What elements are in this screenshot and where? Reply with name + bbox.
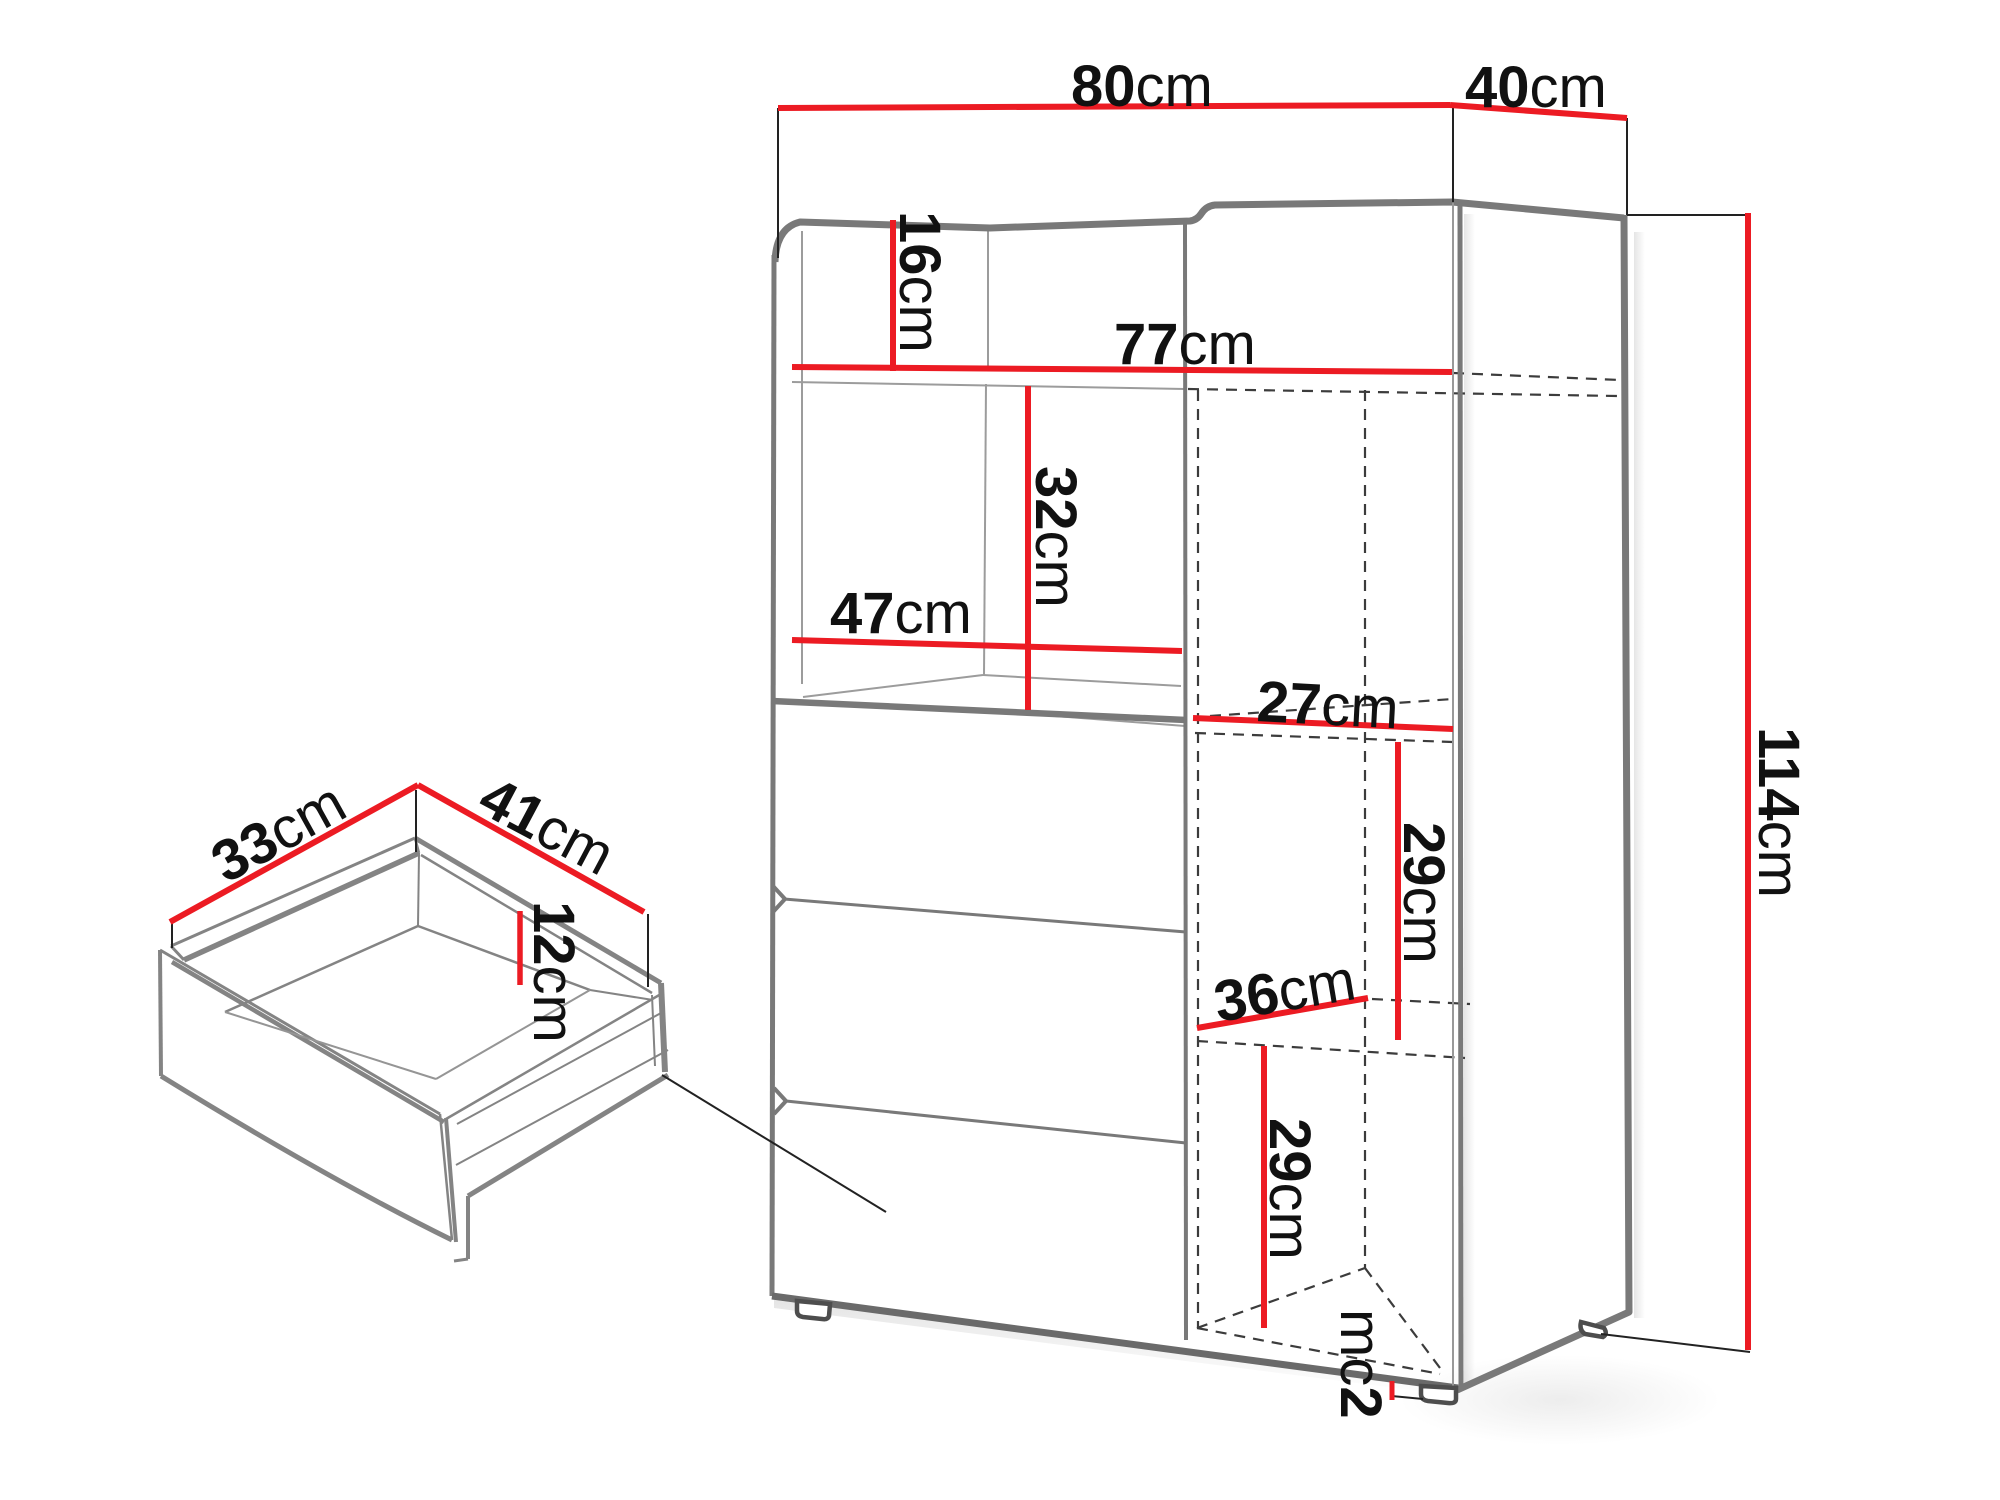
svg-text:47cm: 47cm [830,581,972,646]
svg-text:32cm: 32cm [1023,466,1088,608]
svg-text:114cm: 114cm [1746,727,1811,898]
svg-text:mc2: mc2 [1328,1309,1393,1419]
svg-text:16cm: 16cm [887,211,952,353]
svg-text:12cm: 12cm [521,901,586,1043]
svg-text:80cm: 80cm [1071,54,1213,119]
svg-text:29cm: 29cm [1257,1118,1322,1260]
svg-text:77cm: 77cm [1114,312,1256,377]
svg-text:29cm: 29cm [1391,822,1456,964]
svg-text:27cm: 27cm [1255,669,1400,741]
svg-text:40cm: 40cm [1465,55,1607,120]
